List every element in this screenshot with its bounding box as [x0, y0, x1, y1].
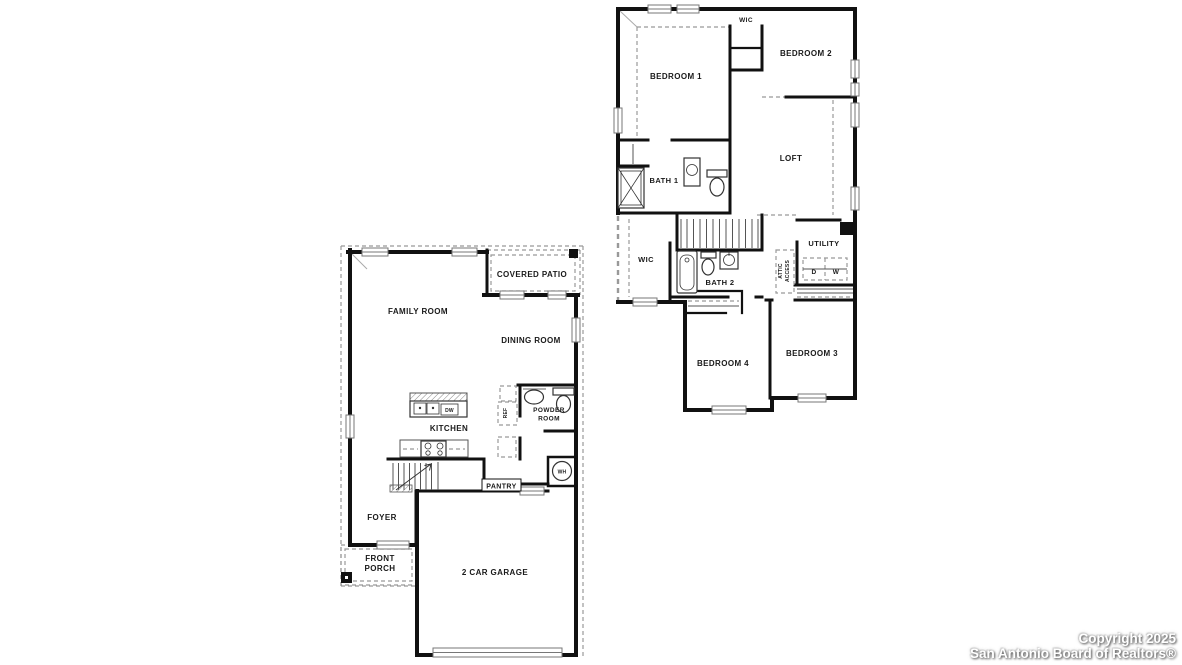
- label-wh: WH: [558, 470, 567, 476]
- label-loft: LOFT: [780, 154, 802, 163]
- label-powder-room-1: POWDER: [533, 407, 565, 414]
- first-floor-plan: WH FAMILY ROOM COVERED PATIO DINING ROOM…: [341, 246, 583, 657]
- label-dw: DW: [445, 408, 454, 414]
- label-kitchen: KITCHEN: [430, 424, 468, 433]
- label-covered-patio: COVERED PATIO: [497, 270, 567, 279]
- label-attic-access: ATTIC ACCESS: [778, 260, 791, 283]
- label-wic-top: WIC: [739, 17, 753, 24]
- label-dining-room: DINING ROOM: [501, 336, 561, 345]
- cabinet-box: [500, 386, 516, 401]
- counter-hatch: [410, 393, 467, 401]
- copyright-watermark: Copyright 2025 San Antonio Board of Real…: [970, 632, 1176, 662]
- sink-icon: [525, 390, 544, 404]
- label-bedroom2: BEDROOM 2: [780, 49, 832, 58]
- patio-post: [569, 249, 578, 258]
- label-utility: UTILITY: [808, 239, 839, 248]
- label-family-room: FAMILY ROOM: [388, 307, 448, 316]
- label-pantry: PANTRY: [486, 484, 516, 491]
- label-front-porch-1: FRONT: [365, 554, 395, 563]
- sink-icon: [684, 158, 700, 186]
- label-bedroom4: BEDROOM 4: [697, 359, 749, 368]
- label-foyer: FOYER: [367, 513, 397, 522]
- label-bedroom3: BEDROOM 3: [786, 349, 838, 358]
- label-dryer: D: [811, 269, 816, 276]
- stairs-icon: [390, 463, 432, 492]
- closet-box: [498, 437, 516, 457]
- copyright-line1: Copyright 2025: [970, 632, 1176, 647]
- label-bedroom1: BEDROOM 1: [650, 72, 702, 81]
- range-counter: [400, 440, 468, 457]
- label-bath2: BATH 2: [706, 278, 735, 287]
- floor-plan-page: BEDROOM 1 WIC BEDROOM 2 LOFT BATH 1 WIC …: [0, 0, 1182, 665]
- stairs-icon: [681, 219, 758, 248]
- toilet-icon: [553, 388, 574, 395]
- label-washer: W: [833, 269, 840, 276]
- toilet-icon: [701, 252, 716, 258]
- label-front-porch-2: PORCH: [365, 564, 396, 573]
- kitchen-island: [410, 393, 467, 417]
- svg-text:ATTIC: ATTIC: [778, 263, 784, 279]
- label-bath1: BATH 1: [650, 176, 679, 185]
- floor-plan-drawing: BEDROOM 1 WIC BEDROOM 2 LOFT BATH 1 WIC …: [0, 0, 1182, 665]
- ceiling-break-line: [620, 11, 637, 27]
- range-icon: [421, 441, 446, 457]
- interior-walls: [618, 26, 855, 398]
- svg-text:ACCESS: ACCESS: [785, 260, 791, 283]
- chase-block: [840, 222, 853, 235]
- copyright-line2: San Antonio Board of Realtors®: [970, 647, 1176, 662]
- label-wic-left: WIC: [638, 255, 654, 264]
- label-powder-room-2: ROOM: [538, 416, 560, 423]
- toilet-icon: [707, 170, 727, 177]
- label-garage: 2 CAR GARAGE: [462, 568, 528, 577]
- second-floor-plan: BEDROOM 1 WIC BEDROOM 2 LOFT BATH 1 WIC …: [614, 5, 859, 414]
- label-ref: REF: [503, 408, 509, 419]
